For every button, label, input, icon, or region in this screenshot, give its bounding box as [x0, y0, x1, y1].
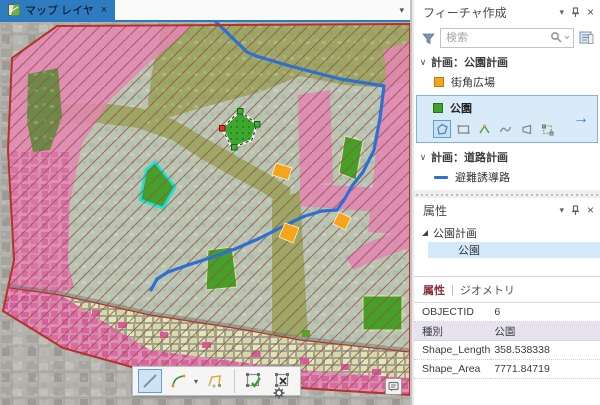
tree-child-row-selected[interactable]: 公園: [428, 242, 600, 258]
field-label: Shape_Length: [414, 341, 490, 360]
panel-splitter[interactable]: [414, 190, 600, 198]
map-tabbar: マップ レイヤ × ▾: [0, 0, 410, 22]
panel-title: フィーチャ作成: [423, 4, 507, 21]
freehand-tool-icon[interactable]: [496, 120, 514, 138]
tree-child-label: 公園: [458, 242, 480, 258]
tab-geometry[interactable]: ジオメトリ: [460, 282, 515, 298]
pin-icon[interactable]: [571, 205, 580, 216]
table-row[interactable]: Shape_Length 358.538338: [414, 341, 600, 360]
map-tab-close-icon[interactable]: ×: [101, 4, 107, 16]
template-label: 公園: [450, 100, 472, 116]
section-road-plan[interactable]: ∨ 計画：道路計画: [414, 147, 600, 167]
arcgis-window: マップ レイヤ × ▾: [0, 0, 600, 405]
vertex-handle[interactable]: [238, 109, 244, 115]
selection-tree: 公園計画 公園: [414, 222, 600, 258]
template-item-evacuation-route[interactable]: 避難誘導路: [414, 167, 600, 187]
trace-tool-icon[interactable]: [203, 369, 227, 393]
tree-parent-label: 公園計画: [433, 225, 477, 241]
dock-panels: フィーチャ作成 ▾ × ∨: [410, 0, 600, 405]
map-tab[interactable]: マップ レイヤ ×: [0, 0, 115, 20]
magnifier-icon[interactable]: [550, 31, 562, 43]
open-template-arrow-icon[interactable]: →: [573, 110, 589, 128]
templates-pane-icon[interactable]: [579, 31, 594, 45]
create-features-header: フィーチャ作成 ▾ ×: [414, 0, 600, 24]
search-box: [440, 28, 574, 48]
close-icon[interactable]: ×: [587, 203, 594, 217]
sketch-options-gear-icon[interactable]: [273, 387, 285, 402]
table-row[interactable]: OBJECTID 6: [414, 303, 600, 322]
tabbar-overflow-caret-icon[interactable]: ▾: [399, 5, 404, 16]
finish-sketch-icon[interactable]: [242, 369, 266, 393]
map-tab-label: マップ レイヤ: [25, 2, 94, 18]
edit-vertices-tool-icon[interactable]: [538, 120, 556, 138]
section-label: 計画：公園計画: [431, 54, 508, 70]
fields-table: OBJECTID 6 種別 公園 Shape_Length 358.538338…: [414, 302, 600, 379]
map-canvas[interactable]: [0, 22, 410, 405]
field-value[interactable]: 358.538338: [490, 341, 600, 360]
template-label: 避難誘導路: [455, 169, 510, 185]
field-label: OBJECTID: [414, 303, 490, 322]
collapse-caret-icon[interactable]: ▾: [559, 205, 564, 216]
search-caret-icon[interactable]: [564, 34, 570, 40]
active-vertex-handle[interactable]: [220, 126, 226, 132]
tab-separator: |: [451, 284, 454, 296]
tab-attributes[interactable]: 属性: [423, 282, 445, 298]
field-value[interactable]: 7771.84719: [490, 360, 600, 379]
field-value[interactable]: 公園: [490, 322, 600, 341]
map-view: マップ レイヤ × ▾: [0, 0, 410, 405]
template-item-plaza[interactable]: 街角広場: [414, 72, 600, 92]
pin-icon[interactable]: [571, 7, 580, 18]
table-row[interactable]: Shape_Area 7771.84719: [414, 360, 600, 379]
template-card-park-selected[interactable]: 公園: [416, 95, 598, 143]
section-park-plan[interactable]: ∨ 計画：公園計画: [414, 52, 600, 72]
field-label: 種別: [414, 322, 490, 341]
green-swatch-icon: [433, 103, 443, 113]
arc-tool-caret-icon[interactable]: ▾: [194, 377, 198, 386]
field-label: Shape_Area: [414, 360, 490, 379]
construction-tools: [433, 120, 591, 138]
filter-funnel-icon[interactable]: [422, 32, 435, 45]
template-search-row: [414, 24, 600, 52]
line-segment-tool-icon[interactable]: [138, 369, 162, 393]
field-value[interactable]: 6: [490, 303, 600, 322]
attributes-header: 属性 ▾ ×: [414, 198, 600, 222]
chevron-down-icon: ∨: [419, 57, 427, 68]
vertex-handle[interactable]: [255, 122, 261, 128]
tree-expanded-icon: [422, 230, 428, 236]
map-thumbnail-icon: [8, 4, 20, 16]
section-label: 計画：道路計画: [431, 149, 508, 165]
template-label: 街角広場: [451, 74, 495, 90]
blue-line-swatch-icon: [434, 176, 448, 179]
panel-title: 属性: [423, 202, 447, 219]
attribute-geometry-tabs: 属性 | ジオメトリ: [414, 277, 600, 302]
vertex-handle[interactable]: [232, 145, 238, 151]
tree-parent-row[interactable]: 公園計画: [414, 225, 600, 241]
rectangle-tool-icon[interactable]: [454, 120, 472, 138]
shape-tool-icon[interactable]: [517, 120, 535, 138]
attributes-panel: 属性 ▾ × 公園計画 公園 属性 | ジオメトリ: [414, 198, 600, 405]
map-notification-icon[interactable]: [385, 378, 402, 395]
orange-swatch-icon: [434, 77, 444, 87]
toolbar-divider: [234, 369, 235, 393]
arc-tool-icon[interactable]: [167, 369, 191, 393]
create-features-panel: フィーチャ作成 ▾ × ∨: [414, 0, 600, 190]
collapse-caret-icon[interactable]: ▾: [559, 7, 564, 18]
midpoint-tool-icon[interactable]: [475, 120, 493, 138]
table-row[interactable]: 種別 公園: [414, 322, 600, 341]
close-icon[interactable]: ×: [587, 5, 594, 19]
polygon-tool-icon[interactable]: [433, 120, 451, 138]
chevron-down-icon: ∨: [419, 152, 427, 163]
